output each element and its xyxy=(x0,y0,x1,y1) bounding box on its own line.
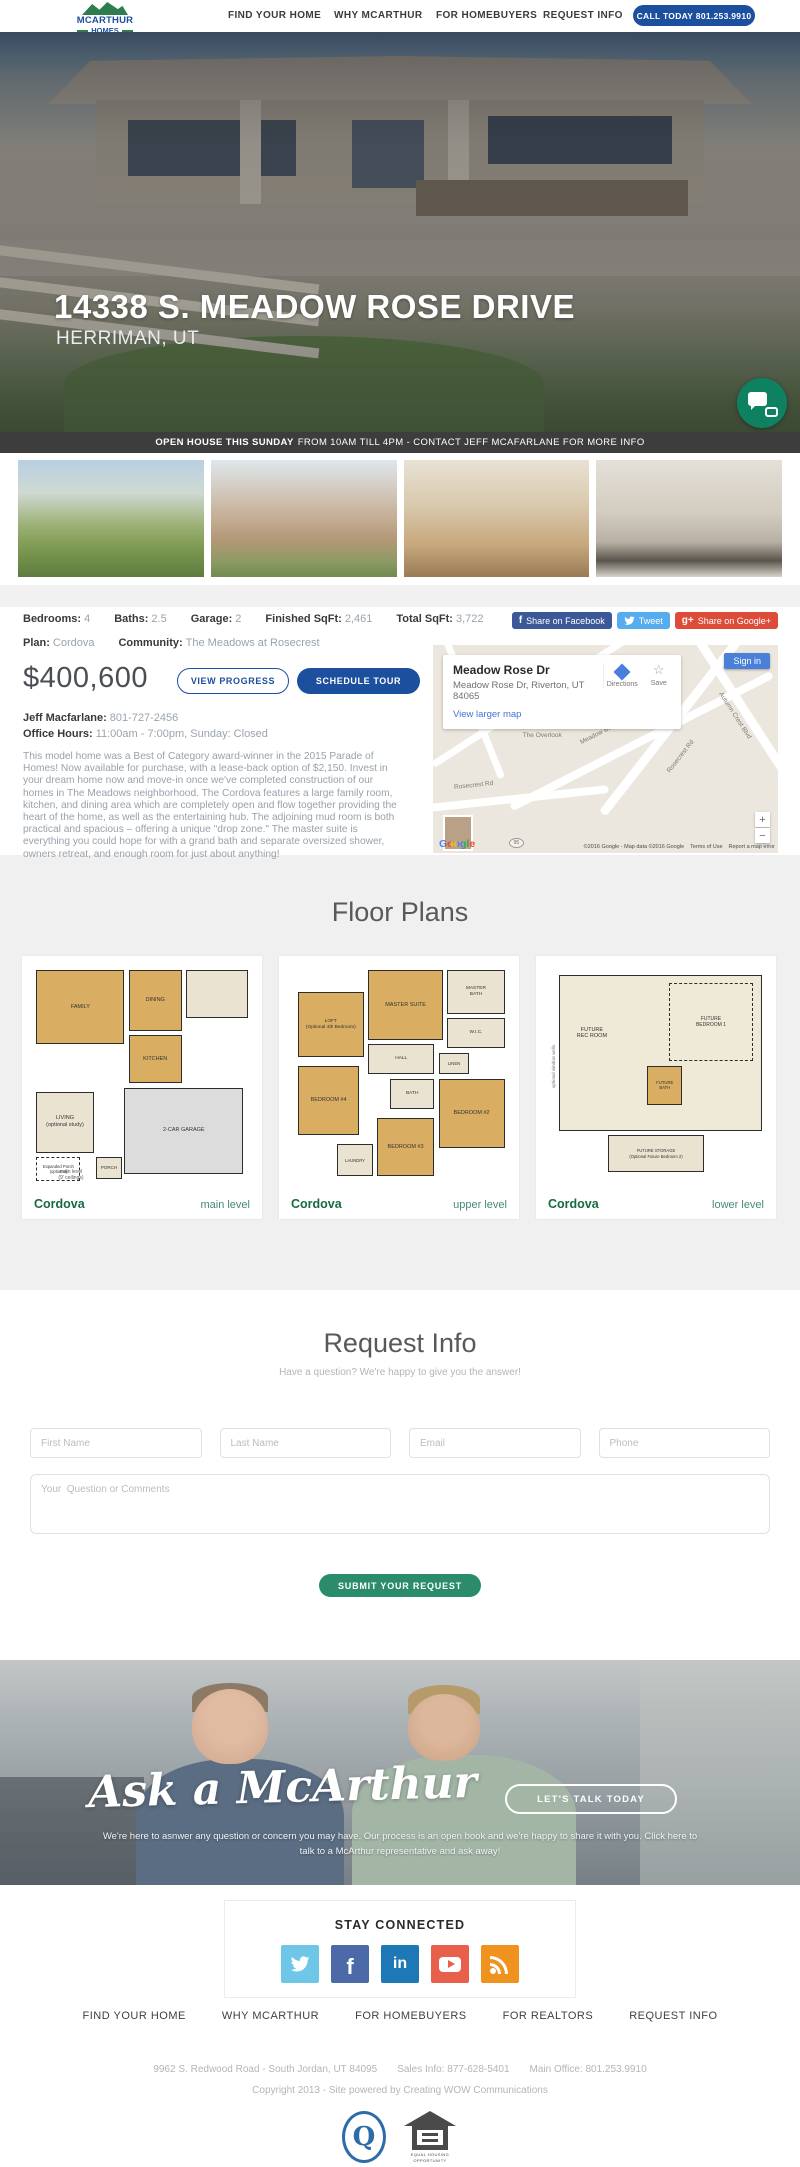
property-address-title: 14338 S. MEADOW ROSE DRIVE xyxy=(54,288,575,326)
plan-name: Cordova xyxy=(34,1197,85,1211)
floor-plan-drawing: LOFT (Optional 4th Bedroom) MASTER SUITE… xyxy=(289,966,509,1183)
tweet-button[interactable]: Tweet xyxy=(617,612,670,629)
facebook-icon: f xyxy=(519,615,522,626)
schedule-tour-button[interactable]: SCHEDULE TOUR xyxy=(297,668,420,694)
price: $400,600 xyxy=(23,662,148,695)
site-header: MCARTHUR HOMES FIND YOUR HOME WHY MCARTH… xyxy=(0,0,800,32)
meta-baths: Baths:2.5 xyxy=(114,613,167,625)
first-name-field[interactable] xyxy=(30,1428,202,1458)
plan-note: main level (9' ceilings) xyxy=(58,1169,83,1181)
site-footer: FIND YOUR HOME WHY MCARTHUR FOR HOMEBUYE… xyxy=(0,2000,800,2167)
meta-community: Community:The Meadows at Rosecrest xyxy=(118,637,319,649)
ask-a-mcarthur-text: We're here to asnwer any question or con… xyxy=(100,1830,700,1859)
footer-nav-for-homebuyers[interactable]: FOR HOMEBUYERS xyxy=(355,2010,467,2022)
rss-icon[interactable] xyxy=(481,1945,519,1983)
man-right-face xyxy=(408,1694,480,1762)
property-meta-row: Bedrooms:4 Baths:2.5 Garage:2 Finished S… xyxy=(23,613,484,625)
room-label: MASTER BATH xyxy=(447,970,504,1013)
room-label: KITCHEN xyxy=(129,1035,182,1083)
footer-nav-for-realtors[interactable]: FOR REALTORS xyxy=(503,2010,594,2022)
footer-badges: Q EQUAL HOUSING OPPORTUNITY xyxy=(0,2111,800,2163)
map-copyright: ©2016 Google - Map data ©2016 Google xyxy=(584,844,684,850)
nav-request-info[interactable]: REQUEST INFO xyxy=(543,10,623,21)
property-description: This model home was a Best of Category a… xyxy=(23,751,405,861)
plan-sidenote: optional window wells xyxy=(551,1045,556,1088)
view-progress-button[interactable]: VIEW PROGRESS xyxy=(177,668,289,694)
room-label: LAUNDRY xyxy=(337,1144,372,1177)
footer-nav-find-your-home[interactable]: FIND YOUR HOME xyxy=(82,2010,185,2022)
request-info-title: Request Info xyxy=(0,1290,800,1359)
mcarthur-homes-logo[interactable]: MCARTHUR HOMES xyxy=(62,2,148,35)
footer-nav-request-info[interactable]: REQUEST INFO xyxy=(629,2010,717,2022)
youtube-icon[interactable] xyxy=(431,1945,469,1983)
map-zoom-in-button[interactable]: + xyxy=(755,812,770,827)
request-info-subtitle: Have a question? We're happy to give you… xyxy=(0,1367,800,1378)
map-info-card: Meadow Rose Dr Meadow Rose Dr, Riverton,… xyxy=(443,655,681,729)
room-label: LOFT (Optional 4th Bedroom) xyxy=(298,992,364,1057)
map-directions-button[interactable]: Directions xyxy=(604,663,641,688)
plan-level: main level xyxy=(200,1199,250,1211)
room-label: DINING xyxy=(129,970,182,1031)
live-chat-button[interactable] xyxy=(737,378,787,428)
office-hours-line: Office Hours:11:00am - 7:00pm, Sunday: C… xyxy=(23,728,268,740)
chat-bubble-icon xyxy=(748,392,767,406)
plan-level: lower level xyxy=(712,1199,764,1211)
footer-copyright: Copyright 2013 - Site powered by Creatin… xyxy=(0,2085,800,2096)
request-info-section: Request Info Have a question? We're happ… xyxy=(0,1290,800,1660)
room-label: PORCH xyxy=(96,1157,122,1179)
plan-community-row: Plan:Cordova Community:The Meadows at Ro… xyxy=(23,637,320,649)
room-label: BATH xyxy=(390,1079,434,1109)
guildquality-badge[interactable]: Q xyxy=(342,2111,386,2163)
email-field[interactable] xyxy=(409,1428,581,1458)
youtube-play-glyph xyxy=(439,1957,461,1972)
twitter-icon[interactable] xyxy=(281,1945,319,1983)
map-zoom-out-button[interactable]: − xyxy=(755,828,770,843)
map-terms-link[interactable]: Terms of Use xyxy=(690,844,722,850)
stay-connected-title: STAY CONNECTED xyxy=(225,1918,575,1932)
street-label: Rosecrest Rd xyxy=(665,739,695,774)
floor-plan-upper-level[interactable]: LOFT (Optional 4th Bedroom) MASTER SUITE… xyxy=(279,956,519,1219)
meta-total-sqft: Total SqFt:3,722 xyxy=(396,613,483,625)
view-larger-map-link[interactable]: View larger map xyxy=(453,709,601,720)
stay-connected-card: STAY CONNECTED f in xyxy=(224,1900,576,1998)
route-shield: 95 xyxy=(509,838,524,848)
footer-nav: FIND YOUR HOME WHY MCARTHUR FOR HOMEBUYE… xyxy=(0,2010,800,2022)
google-plus-icon: g+ xyxy=(682,615,694,626)
map-save-button[interactable]: ☆ Save xyxy=(641,663,678,688)
call-today-button[interactable]: CALL TODAY 801.253.9910 xyxy=(633,5,755,26)
street-label: The Overlook xyxy=(523,732,562,739)
lets-talk-today-button[interactable]: LET'S TALK TODAY xyxy=(505,1784,677,1814)
ask-a-mcarthur-title: Ask a McArthur xyxy=(87,1757,477,1818)
twitter-bird-icon xyxy=(624,616,635,626)
footer-contact-line: 9962 S. Redwood Road - South Jordan, UT … xyxy=(0,2064,800,2075)
last-name-field[interactable] xyxy=(220,1428,392,1458)
room-label: W.I.C. xyxy=(447,1018,504,1048)
section-divider-band xyxy=(0,585,800,607)
gallery-thumb-living-room[interactable] xyxy=(404,460,590,577)
room-label: FUTURE STORAGE (Optional Future Bedroom … xyxy=(608,1135,705,1172)
facebook-icon[interactable]: f xyxy=(331,1945,369,1983)
map-sign-in-button[interactable]: Sign in xyxy=(724,653,770,669)
share-facebook-button[interactable]: f Share on Facebook xyxy=(512,612,612,629)
agent-contact-line: Jeff Macfarlane:801-727-2456 xyxy=(23,712,178,724)
property-details-panel: Bedrooms:4 Baths:2.5 Garage:2 Finished S… xyxy=(0,607,800,855)
plan-name: Cordova xyxy=(291,1197,342,1211)
room-unlabeled xyxy=(186,970,248,1018)
nav-for-homebuyers[interactable]: FOR HOMEBUYERS xyxy=(436,10,537,21)
nav-find-your-home[interactable]: FIND YOUR HOME xyxy=(228,10,321,21)
room-label: BEDROOM #4 xyxy=(298,1066,360,1135)
room-label: FUTURE BEDROOM 1 xyxy=(669,983,753,1061)
stay-connected-section: STAY CONNECTED f in xyxy=(0,1885,800,2000)
social-share-row: f Share on Facebook Tweet g+ Share on Go… xyxy=(512,612,778,629)
meta-garage: Garage:2 xyxy=(191,613,242,625)
open-house-banner: OPEN HOUSE THIS SUNDAY FROM 10AM TILL 4P… xyxy=(0,432,800,453)
gallery-thumb-kitchen[interactable] xyxy=(596,460,782,577)
floor-plan-drawing: FAMILY DINING KITCHEN LIVING (optional s… xyxy=(32,966,252,1183)
directions-icon xyxy=(614,664,631,681)
equal-housing-roof xyxy=(404,2111,456,2126)
room-label: LIVING (optional study) xyxy=(36,1092,93,1153)
google-logo[interactable]: Google xyxy=(439,838,475,850)
gallery-thumb-community[interactable] xyxy=(18,460,204,577)
map-attribution: ©2016 Google - Map data ©2016 Google Ter… xyxy=(584,844,775,850)
floor-plan-lower-level[interactable]: FUTURE REC ROOM FUTURE BEDROOM 1 FUTURE … xyxy=(536,956,776,1219)
nav-why-mcarthur[interactable]: WHY MCARTHUR xyxy=(334,10,423,21)
property-city-subtitle: HERRIMAN, UT xyxy=(56,328,199,350)
logo-text-mcarthur: MCARTHUR xyxy=(62,15,148,26)
man-left-face xyxy=(192,1689,268,1763)
comments-field[interactable] xyxy=(30,1474,770,1534)
share-google-plus-button[interactable]: g+ Share on Google+ xyxy=(675,612,778,629)
room-label: LINEN xyxy=(439,1053,470,1075)
room-label: BEDROOM #2 xyxy=(439,1079,505,1148)
phone-field[interactable] xyxy=(599,1428,771,1458)
plan-name: Cordova xyxy=(548,1197,599,1211)
gallery-thumb-exterior[interactable] xyxy=(211,460,397,577)
floor-plans-title: Floor Plans xyxy=(0,855,800,928)
footer-main-office: Main Office: 801.253.9910 xyxy=(530,2064,647,2075)
open-house-details: FROM 10AM TILL 4PM - CONTACT JEFF MCAFAR… xyxy=(298,437,645,448)
footer-address: 9962 S. Redwood Road - South Jordan, UT … xyxy=(153,2064,377,2075)
plan-level: upper level xyxy=(453,1199,507,1211)
hero-photo: 14338 S. MEADOW ROSE DRIVE HERRIMAN, UT xyxy=(0,32,800,432)
hero-dark-overlay xyxy=(0,32,800,432)
street-label: Rosecrest Rd xyxy=(453,780,493,791)
equal-housing-house xyxy=(412,2125,448,2150)
map-report-error-link[interactable]: Report a map error xyxy=(729,844,775,850)
mountain-logo-icon xyxy=(82,2,128,15)
room-label: 2-CAR GARAGE xyxy=(124,1088,243,1175)
ask-a-mcarthur-section: Ask a McArthur LET'S TALK TODAY We're he… xyxy=(0,1660,800,1885)
room-label: BEDROOM #3 xyxy=(377,1118,434,1177)
room-label: MASTER SUITE xyxy=(368,970,443,1039)
meta-bedrooms: Bedrooms:4 xyxy=(23,613,90,625)
floor-plan-drawing: FUTURE REC ROOM FUTURE BEDROOM 1 FUTURE … xyxy=(546,966,766,1183)
agent-phone: 801-727-2456 xyxy=(110,712,179,724)
footer-nav-why-mcarthur[interactable]: WHY MCARTHUR xyxy=(222,2010,319,2022)
room-label: FAMILY xyxy=(36,970,124,1044)
room-label: FUTURE REC ROOM xyxy=(577,1027,607,1039)
floor-plans-section: Floor Plans FAMILY DINING KITCHEN LIVING… xyxy=(0,855,800,1290)
meta-finished-sqft: Finished SqFt:2,461 xyxy=(265,613,372,625)
linkedin-icon[interactable]: in xyxy=(381,1945,419,1983)
save-star-icon: ☆ xyxy=(641,663,678,677)
chat-bubble-small-icon xyxy=(765,407,778,417)
twitter-bird-glyph xyxy=(290,1956,310,1973)
google-map-embed[interactable]: Breezy Meadow Dr Meadow Bend Dr Autumn C… xyxy=(433,645,778,853)
request-form-fields xyxy=(0,1428,800,1458)
submit-request-button[interactable]: SUBMIT YOUR REQUEST xyxy=(319,1574,481,1597)
photo-gallery xyxy=(0,453,800,585)
meta-plan: Plan:Cordova xyxy=(23,637,94,649)
equal-housing-logo[interactable]: EQUAL HOUSING OPPORTUNITY xyxy=(402,2111,458,2163)
equal-housing-text: EQUAL HOUSING OPPORTUNITY xyxy=(402,2152,458,2163)
open-house-highlight: OPEN HOUSE THIS SUNDAY xyxy=(155,437,293,448)
map-card-address: Meadow Rose Dr, Riverton, UT 84065 xyxy=(453,680,601,702)
floor-plan-main-level[interactable]: FAMILY DINING KITCHEN LIVING (optional s… xyxy=(22,956,262,1219)
map-card-title: Meadow Rose Dr xyxy=(453,663,601,677)
room-label: FUTURE BATH xyxy=(647,1066,682,1105)
room-label: HALL xyxy=(368,1044,434,1074)
footer-sales-info: Sales Info: 877-628-5401 xyxy=(397,2064,509,2075)
